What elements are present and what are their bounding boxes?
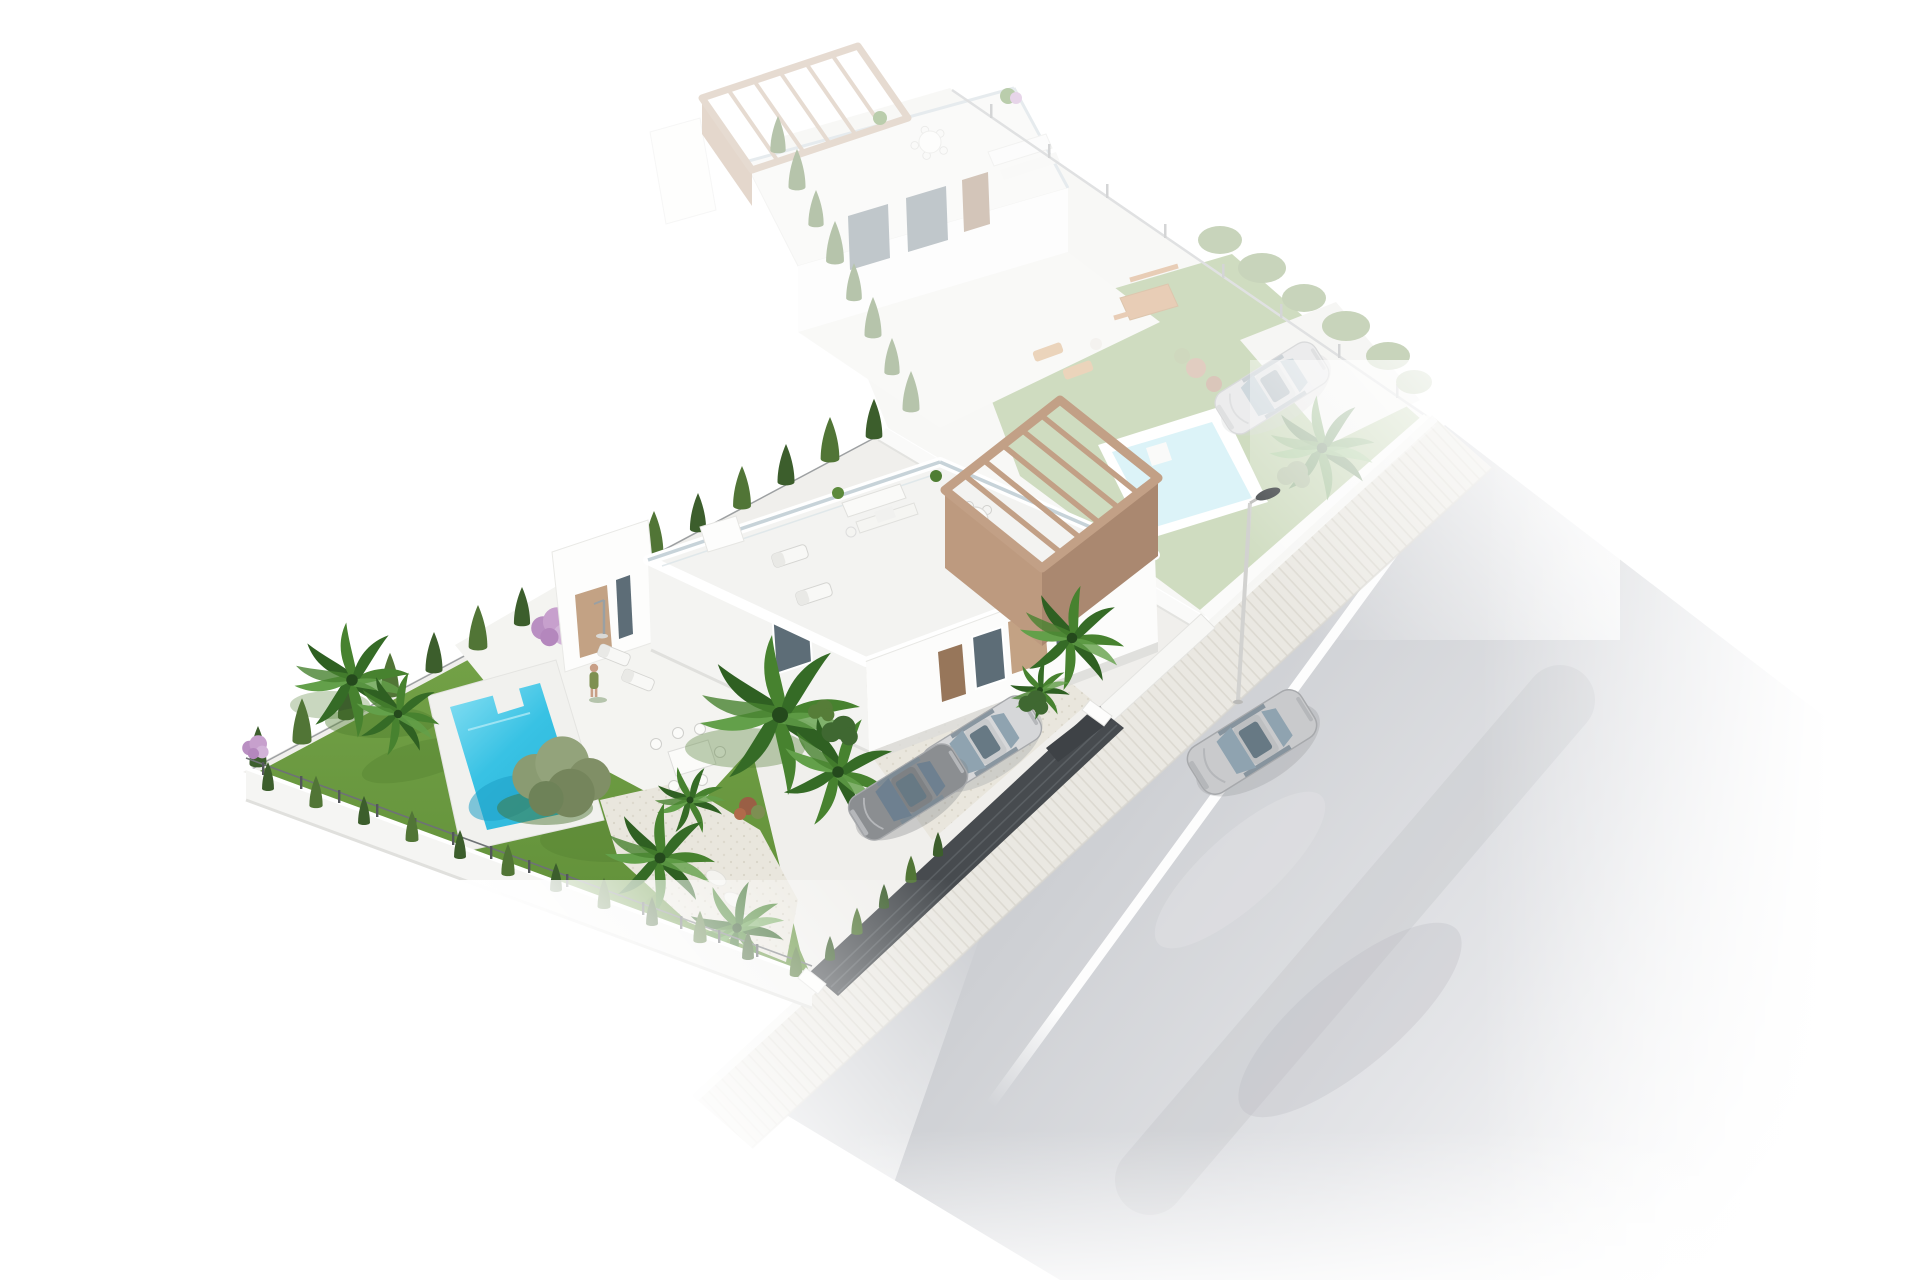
villa-render-image bbox=[0, 0, 1920, 1280]
architectural-render-page bbox=[0, 0, 1920, 1280]
front-door bbox=[938, 644, 966, 702]
